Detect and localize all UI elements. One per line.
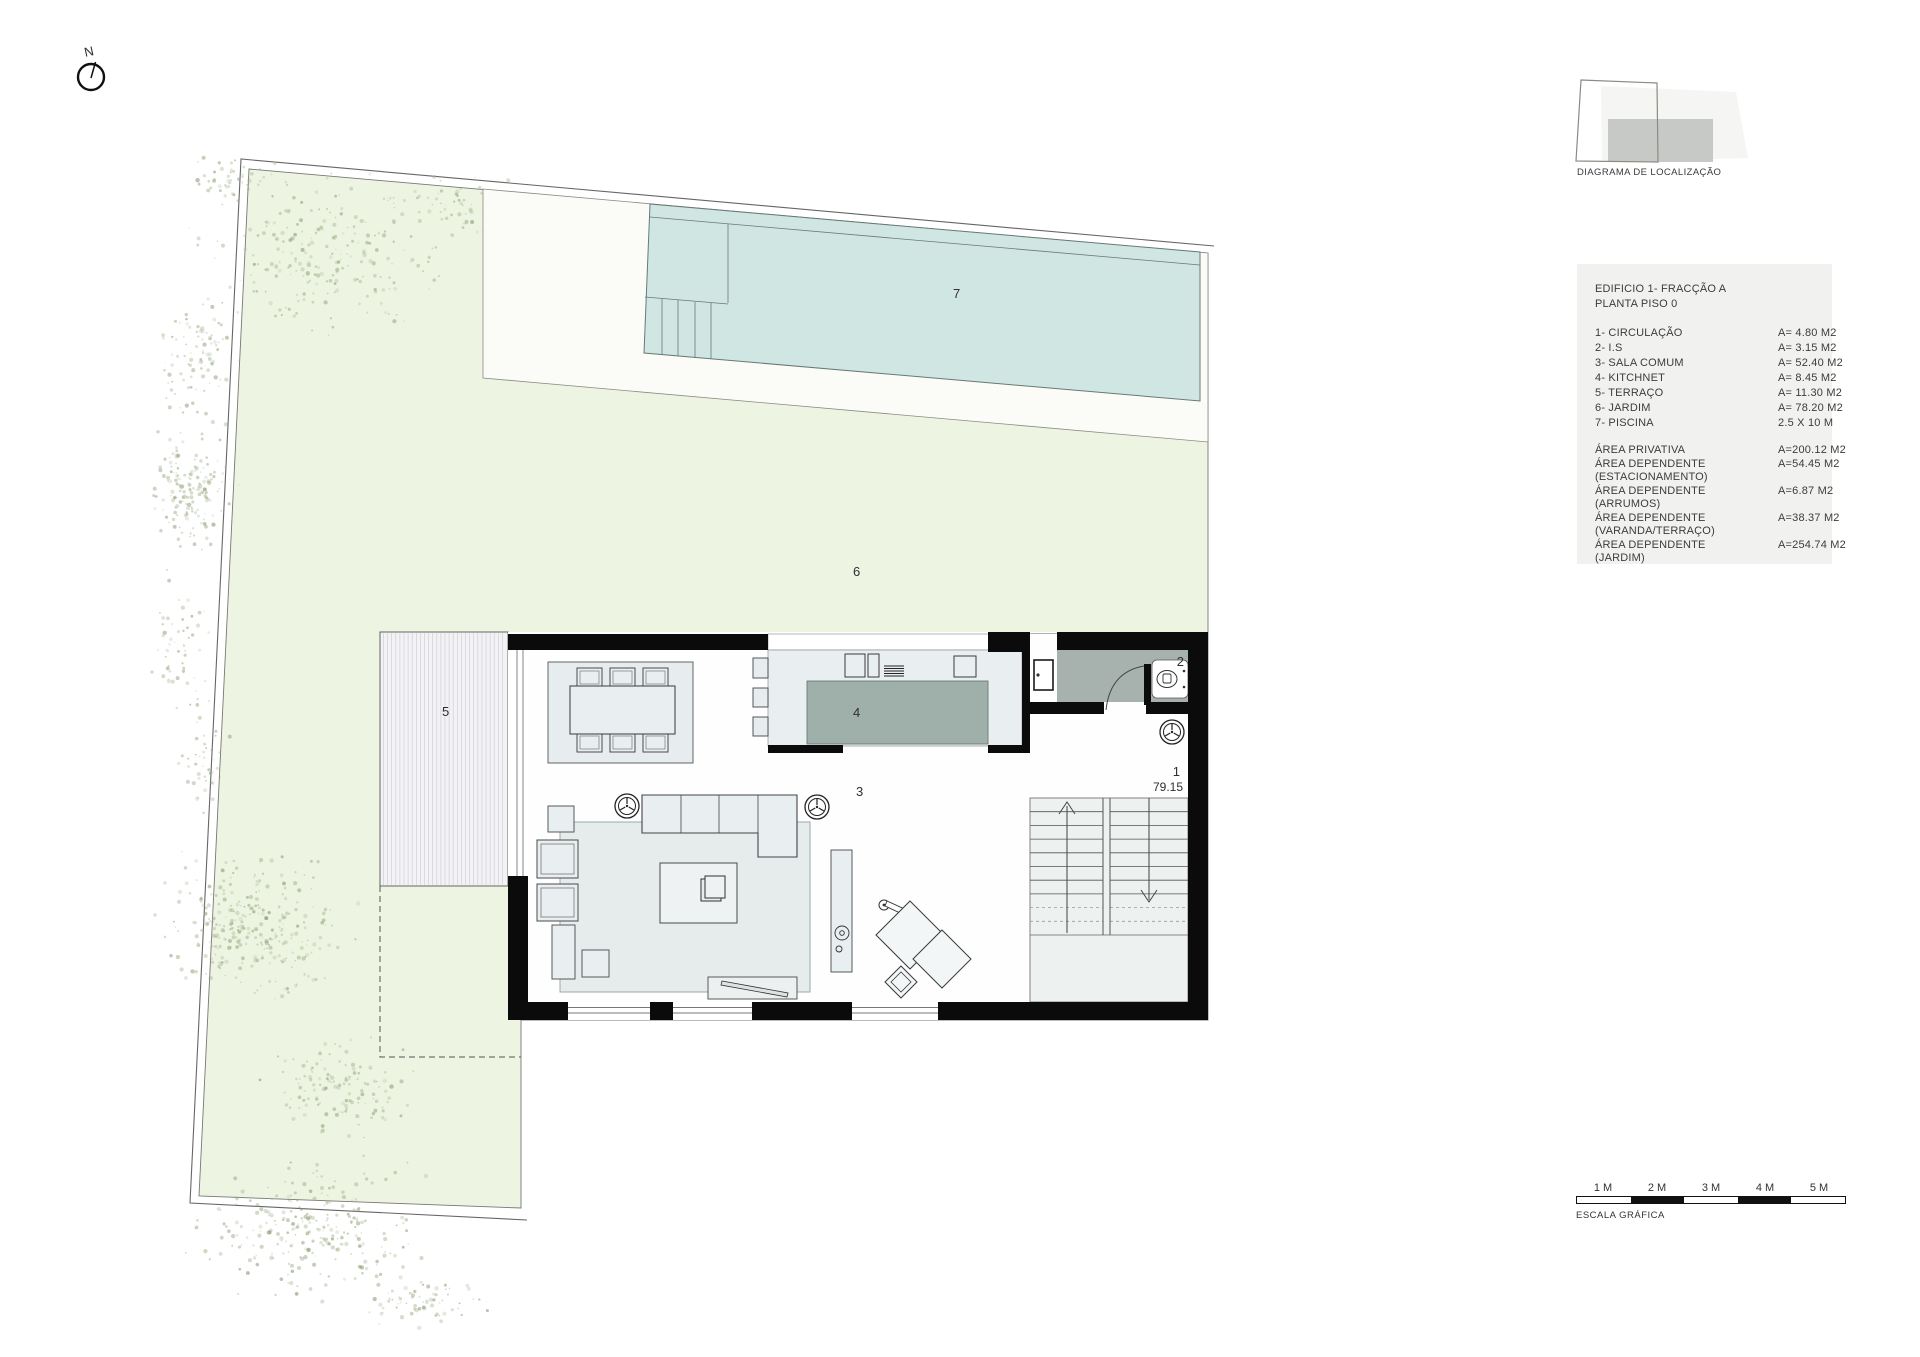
- ceiling-fan-icon: [1160, 720, 1184, 744]
- terrace: [380, 632, 508, 886]
- legend-item: 2- I.SA= 3.15 M2: [1595, 342, 1818, 355]
- room-label-sala: 3: [856, 784, 863, 799]
- legend-area: ÁREA DEPENDENTEA=54.45 M2 (ESTACIONAMENT…: [1595, 458, 1818, 484]
- legend-area: ÁREA DEPENDENTEA=254.74 M2 (JARDIM): [1595, 539, 1818, 565]
- kitchen-island: [807, 681, 988, 744]
- legend-room-list: 1- CIRCULAÇÃOA= 4.80 M2 2- I.SA= 3.15 M2…: [1595, 327, 1818, 430]
- legend-item: 5- TERRAÇOA= 11.30 M2: [1595, 387, 1818, 400]
- scale-bar: 1 M 2 M 3 M 4 M 5 M ESCALA GRÁFICA: [1576, 1182, 1846, 1221]
- level-label: 79.15: [1153, 780, 1183, 794]
- shelf: [831, 850, 852, 972]
- building: [508, 632, 1208, 1020]
- room-label-jardim: 6: [853, 564, 860, 579]
- legend-area: ÁREA PRIVATIVAA=200.12 M2: [1595, 444, 1818, 457]
- room-label-piscina: 7: [953, 286, 960, 301]
- armchair: [537, 884, 578, 921]
- north-arrow-icon: N: [78, 43, 104, 90]
- side-table: [582, 950, 609, 977]
- cabinet: [753, 717, 768, 736]
- ceiling-fan-icon: [805, 795, 829, 819]
- room-label-terraco: 5: [442, 704, 449, 719]
- legend-panel: EDIFICIO 1- FRACÇÃO A PLANTA PISO 0 1- C…: [1577, 264, 1832, 564]
- cabinet: [753, 658, 768, 678]
- room-label-is: 2: [1177, 654, 1184, 669]
- room-label-circulacao: 1: [1173, 764, 1180, 779]
- bathroom: [1057, 650, 1188, 702]
- cabinet: [753, 688, 768, 707]
- legend-item: 7- PISCINA2.5 X 10 M: [1595, 417, 1818, 430]
- scale-bar-labels: 1 M 2 M 3 M 4 M 5 M: [1576, 1182, 1846, 1194]
- plan-drawing: 1 2 3 4 5 6 7 79.15 N: [0, 0, 1920, 1357]
- room-label-kitchnet: 4: [853, 705, 860, 720]
- scale-bar-caption: ESCALA GRÁFICA: [1576, 1210, 1846, 1221]
- scale-bar-segments: [1576, 1196, 1846, 1204]
- location-diagram-caption: DIAGRAMA DE LOCALIZAÇÃO: [1577, 167, 1721, 178]
- legend-item: 1- CIRCULAÇÃOA= 4.80 M2: [1595, 327, 1818, 340]
- toilet-icon: [1157, 671, 1177, 688]
- dining-area: [548, 662, 693, 763]
- floor-plan-sheet: 1 2 3 4 5 6 7 79.15 N DIAGRAMA DE LOCALI…: [0, 0, 1920, 1357]
- kitchen-window: [768, 634, 1022, 650]
- north-label: N: [83, 43, 95, 60]
- kitchen: [753, 634, 1022, 746]
- ceiling-fan-icon: [615, 794, 639, 818]
- legend-title-line2: PLANTA PISO 0: [1595, 298, 1818, 311]
- armchair: [537, 840, 578, 878]
- side-table: [548, 806, 574, 832]
- location-diagram: [1576, 80, 1748, 162]
- legend-title-line1: EDIFICIO 1- FRACÇÃO A: [1595, 283, 1818, 296]
- legend-area: ÁREA DEPENDENTEA=6.87 M2 (ARRUMOS): [1595, 485, 1818, 511]
- legend-area-list: ÁREA PRIVATIVAA=200.12 M2 ÁREA DEPENDENT…: [1595, 444, 1818, 565]
- legend-item: 6- JARDIMA= 78.20 M2: [1595, 402, 1818, 415]
- console: [552, 925, 575, 979]
- location-building-shape: [1608, 119, 1713, 162]
- dining-table: [570, 686, 675, 734]
- legend-item: 4- KITCHNETA= 8.45 M2: [1595, 372, 1818, 385]
- legend-item: 3- SALA COMUMA= 52.40 M2: [1595, 357, 1818, 370]
- legend-area: ÁREA DEPENDENTEA=38.37 M2 (VARANDA/TERRA…: [1595, 512, 1818, 538]
- staircase: [1030, 798, 1188, 1002]
